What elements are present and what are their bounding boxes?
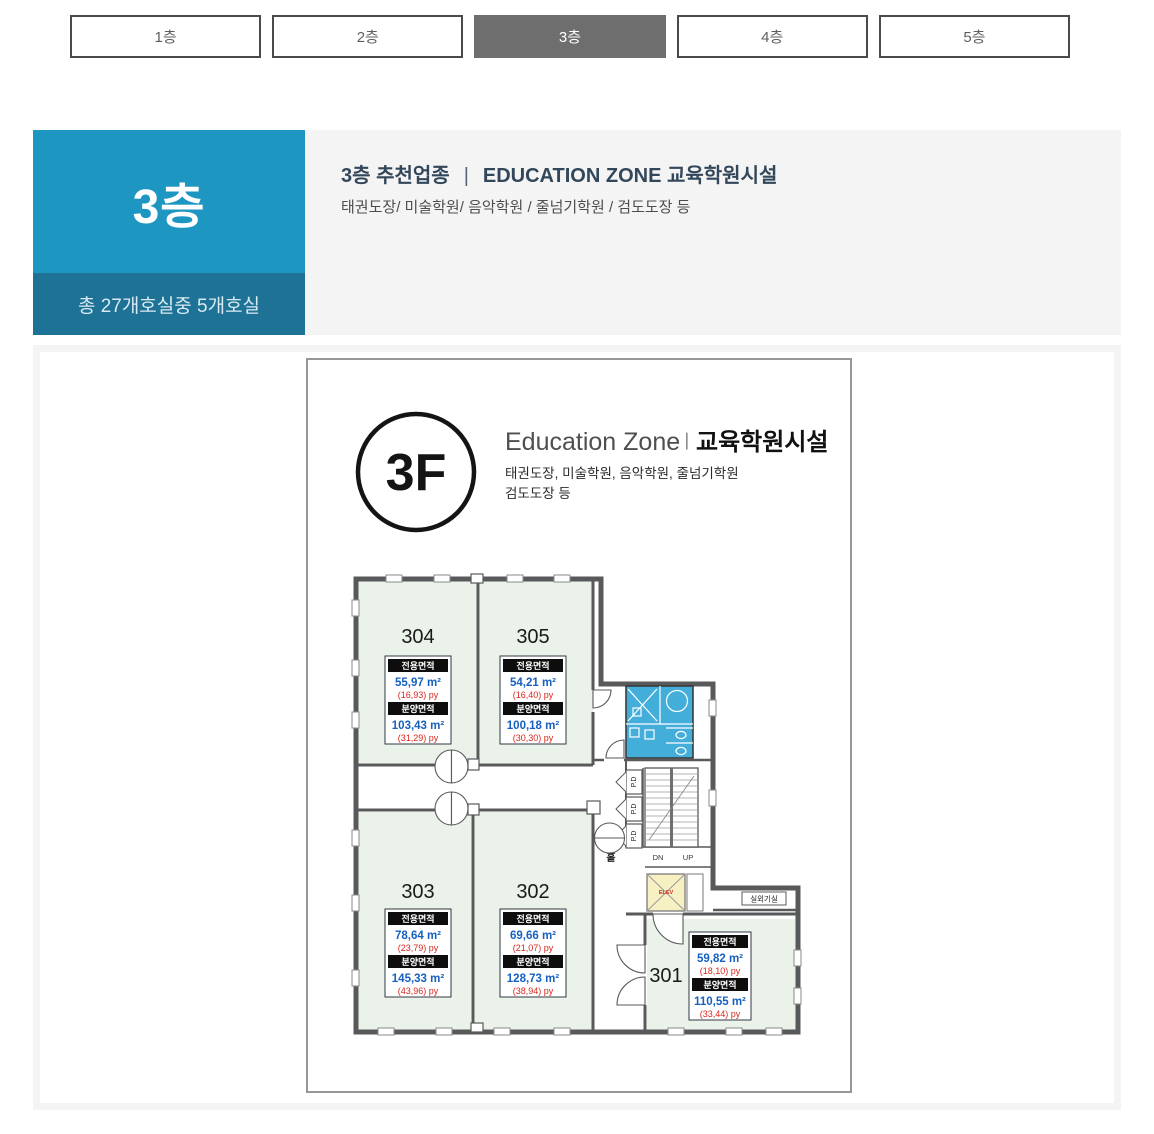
floor-header: 3층 총 27개호실중 5개호실 3층 추천업종|EDUCATION ZONE … [33, 130, 1121, 335]
area-label: 분양면적 [516, 703, 549, 714]
area-value-py: (16,93) py [398, 690, 439, 700]
area-value-py: (18,10) py [700, 966, 741, 976]
area-value-py: (33,44) py [700, 1009, 741, 1019]
floorplan-section: 3F Education Zone ㅣ 교육학원시설 태권도장, 미술학원, 음… [33, 345, 1121, 1110]
area-label: 전용면적 [516, 913, 549, 924]
room-304-infobox: 전용면적 55,97 m² (16,93) py 분양면적 103,43 m² … [385, 656, 451, 744]
stairs-up-label: UP [683, 853, 693, 862]
room-302-infobox: 전용면적 69,66 m² (21,07) py 분양면적 128,73 m² … [500, 909, 566, 997]
room-304-number: 304 [401, 626, 434, 648]
area-value-m2: 78,64 m² [395, 930, 441, 942]
tab-floor-3[interactable]: 3층 [474, 15, 665, 58]
pd-label-1: P.D [631, 777, 638, 788]
area-label: 전용면적 [516, 660, 549, 671]
plan-title-en: Education Zone [505, 428, 680, 456]
plan-subtitle-line2: 검도도장 등 [505, 486, 571, 501]
plan-title-ko: 교육학원시설 [696, 429, 828, 456]
door-bathroom [606, 740, 624, 758]
recommend-prefix: 3층 추천업종 [341, 165, 450, 187]
pd-label-2: P.D [631, 804, 638, 815]
stairs-down-label: DN [653, 853, 664, 862]
area-value-m2: 69,66 m² [510, 930, 556, 942]
floorplan-svg: 3F Education Zone ㅣ 교육학원시설 태권도장, 미술학원, 음… [308, 360, 850, 1091]
area-label: 분양면적 [401, 703, 434, 714]
area-value-py: (21,07) py [513, 943, 554, 953]
area-value-py: (16,40) py [513, 690, 554, 700]
door-hall-top [595, 823, 625, 838]
tab-floor-2[interactable]: 2층 [272, 15, 463, 58]
area-value-m2: 128,73 m² [507, 973, 560, 985]
plan-title-divider: ㅣ [678, 432, 695, 453]
tab-floor-1[interactable]: 1층 [70, 15, 261, 58]
floorplan-title-block: 3F Education Zone ㅣ 교육학원시설 태권도장, 미술학원, 음… [358, 414, 828, 530]
pd-label-3: P.D [631, 831, 638, 842]
door-hall-bottom [595, 838, 625, 853]
area-value-m2: 145,33 m² [392, 973, 445, 985]
area-value-m2: 59,82 m² [697, 953, 743, 965]
recommend-title: 3층 추천업종|EDUCATION ZONE 교육학원시설 [341, 159, 777, 188]
area-value-m2: 103,43 m² [392, 720, 445, 732]
floor-room-count: 총 27개호실중 5개호실 [78, 291, 260, 318]
area-value-m2: 100,18 m² [507, 720, 560, 732]
area-label: 전용면적 [703, 936, 736, 947]
area-value-py: (23,79) py [398, 943, 439, 953]
area-value-m2: 110,55 m² [694, 996, 746, 1008]
floor-badge-bottom: 총 27개호실중 5개호실 [33, 273, 305, 335]
door-bathroom-entry [593, 690, 611, 708]
floor-badge-top: 3층 [33, 130, 305, 273]
room-305-infobox: 전용면적 54,21 m² (16,40) py 분양면적 100,18 m² … [500, 656, 566, 744]
tab-floor-4[interactable]: 4층 [677, 15, 868, 58]
room-301-infobox: 전용면적 59,82 m² (18,10) py 분양면적 110,55 m² … [689, 932, 751, 1020]
recommend-description: 태권도장/ 미술학원/ 음악학원 / 줄넘기학원 / 검도도장 등 [341, 196, 690, 217]
room-305-number: 305 [516, 626, 549, 648]
stairs: DN UP [645, 768, 698, 862]
page: 1층 2층 3층 4층 5층 3층 총 27개호실중 5개호실 3층 추천업종|… [0, 0, 1154, 1134]
room-303-infobox: 전용면적 78,64 m² (23,79) py 분양면적 145,33 m² … [385, 909, 451, 997]
room-301-number: 301 [649, 965, 682, 987]
room-303-number: 303 [401, 881, 434, 903]
door-lobby-lower [617, 977, 645, 1005]
room-302-number: 302 [516, 881, 549, 903]
area-value-m2: 54,21 m² [510, 677, 556, 689]
plan-subtitle-line1: 태권도장, 미술학원, 음악학원, 줄넘기학원 [505, 466, 739, 481]
elevator: ELEV [647, 874, 703, 911]
floorplan-image: 3F Education Zone ㅣ 교육학원시설 태권도장, 미술학원, 음… [306, 358, 852, 1093]
floorplan-inner-panel: 3F Education Zone ㅣ 교육학원시설 태권도장, 미술학원, 음… [40, 352, 1114, 1103]
elevator-label: ELEV [659, 890, 674, 896]
floor-badge-label: 3F [386, 444, 447, 502]
area-value-py: (38,94) py [513, 986, 554, 996]
floor-title: 3층 [133, 167, 206, 237]
area-label: 분양면적 [516, 956, 549, 967]
title-divider: | [464, 165, 469, 187]
area-label: 전용면적 [401, 913, 434, 924]
area-value-m2: 55,97 m² [395, 677, 441, 689]
door-lobby-upper [617, 945, 645, 973]
area-label: 분양면적 [703, 979, 736, 990]
area-value-py: (43,96) py [398, 986, 439, 996]
floor-badge-box: 3층 총 27개호실중 5개호실 [33, 130, 305, 335]
recommend-zone: EDUCATION ZONE 교육학원시설 [483, 165, 777, 187]
floor-tab-bar: 1층 2층 3층 4층 5층 [70, 15, 1070, 58]
tab-floor-5[interactable]: 5층 [879, 15, 1070, 58]
area-label: 전용면적 [401, 660, 434, 671]
outdoor-unit-label: 실외기실 [750, 894, 778, 904]
area-label: 분양면적 [401, 956, 434, 967]
outdoor-unit-room: 실외기실 [742, 892, 786, 905]
area-value-py: (31,29) py [398, 733, 439, 743]
bathroom [626, 686, 693, 758]
area-value-py: (30,30) py [513, 733, 554, 743]
